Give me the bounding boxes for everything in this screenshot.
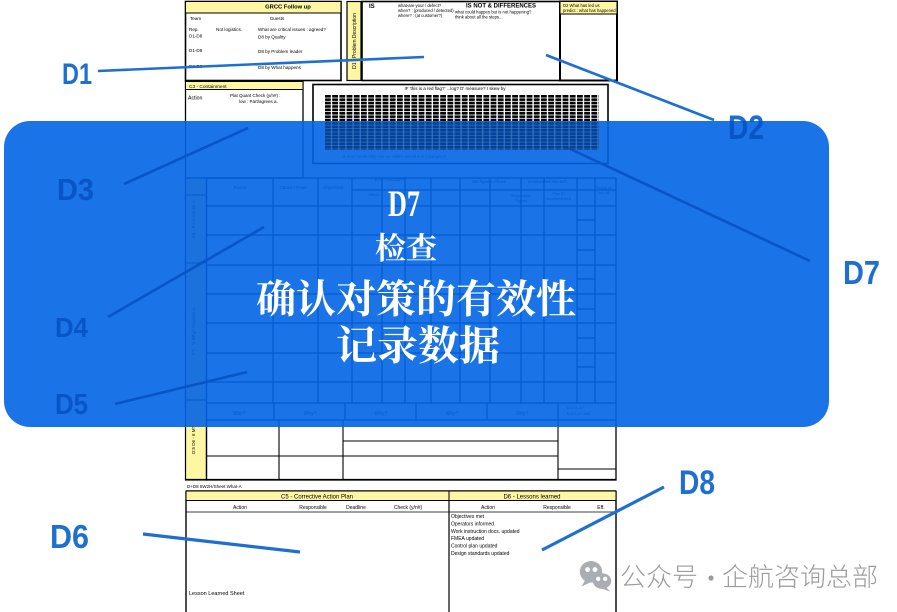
svg-text:Objectives met: Objectives met	[451, 514, 485, 520]
svg-text:Team: Team	[190, 16, 201, 21]
svg-text:D3: D3	[57, 172, 94, 207]
svg-text:think about all the steps...: think about all the steps...	[455, 15, 503, 20]
svg-text:D7: D7	[388, 184, 420, 225]
svg-text:D+D8 5W2H/Sheet What-A: D+D8 5W2H/Sheet What-A	[187, 484, 242, 489]
svg-text:low : Part/agrees a.: low : Part/agrees a.	[239, 99, 278, 104]
svg-text:D4: D4	[55, 312, 88, 343]
svg-text:Action: Action	[233, 505, 247, 511]
svg-text:Action: Action	[188, 96, 203, 102]
svg-text:D1-D8: D1-D8	[189, 34, 203, 39]
svg-text:D8 by Problem leader: D8 by Problem leader	[258, 49, 303, 54]
svg-text:D6: D6	[50, 518, 89, 555]
svg-text:Control plan updated: Control plan updated	[451, 544, 498, 550]
svg-text:predict : what has happened: predict : what has happened	[563, 8, 616, 13]
svg-text:D1: D1	[62, 58, 92, 91]
svg-text:Responsible: Responsible	[299, 505, 327, 511]
svg-text:Operators informed: Operators informed	[451, 521, 494, 527]
svg-text:FMEA updated: FMEA updated	[451, 536, 484, 542]
svg-text:IS: IS	[369, 4, 375, 10]
svg-text:D7: D7	[843, 254, 880, 291]
svg-text:Not logistics.: Not logistics.	[216, 27, 242, 32]
svg-text:IF 'this is a red flag?' ...lo: IF 'this is a red flag?' ...log? D' meas…	[404, 86, 506, 91]
svg-text:where? : (at customer?): where? : (at customer?)	[398, 13, 443, 18]
svg-text:Rep.: Rep.	[189, 27, 199, 32]
svg-text:Deadline: Deadline	[346, 505, 366, 511]
svg-text:C5 - Corrective Action Plan: C5 - Corrective Action Plan	[281, 495, 353, 501]
svg-text:Plat Quant Check (y/n#): Plat Quant Check (y/n#) :	[230, 93, 281, 98]
svg-text:GRCC Follow up: GRCC Follow up	[265, 5, 311, 11]
svg-text:D1-D8: D1-D8	[189, 48, 203, 53]
svg-text:Action: Action	[481, 505, 495, 511]
svg-text:What are critical issues : a: What are critical issues : agreed?	[258, 27, 326, 32]
svg-text:D8 by What happens: D8 by What happens	[258, 65, 302, 70]
svg-text:Lesson Learned Sheet: Lesson Learned Sheet	[189, 591, 245, 597]
svg-text:Check (y/n#): Check (y/n#)	[394, 505, 423, 511]
svg-text:D5: D5	[55, 389, 88, 421]
svg-text:Eff.: Eff.	[597, 505, 604, 511]
svg-text:Responsible: Responsible	[543, 505, 571, 511]
svg-text:D8: D8	[679, 464, 715, 502]
svg-text:D:5 D6 - 6 M?: D:5 D6 - 6 M?	[191, 426, 196, 455]
svg-text:Guests: Guests	[270, 16, 285, 21]
svg-text:D8 by Quality: D8 by Quality	[258, 35, 286, 40]
svg-text:C3 - Containment: C3 - Containment	[189, 84, 227, 90]
svg-text:Work instruction docs. updated: Work instruction docs. updated	[451, 529, 520, 535]
svg-text:Design standards updated: Design standards updated	[451, 551, 510, 557]
svg-text:D6 - Lessons learned: D6 - Lessons learned	[503, 495, 560, 501]
